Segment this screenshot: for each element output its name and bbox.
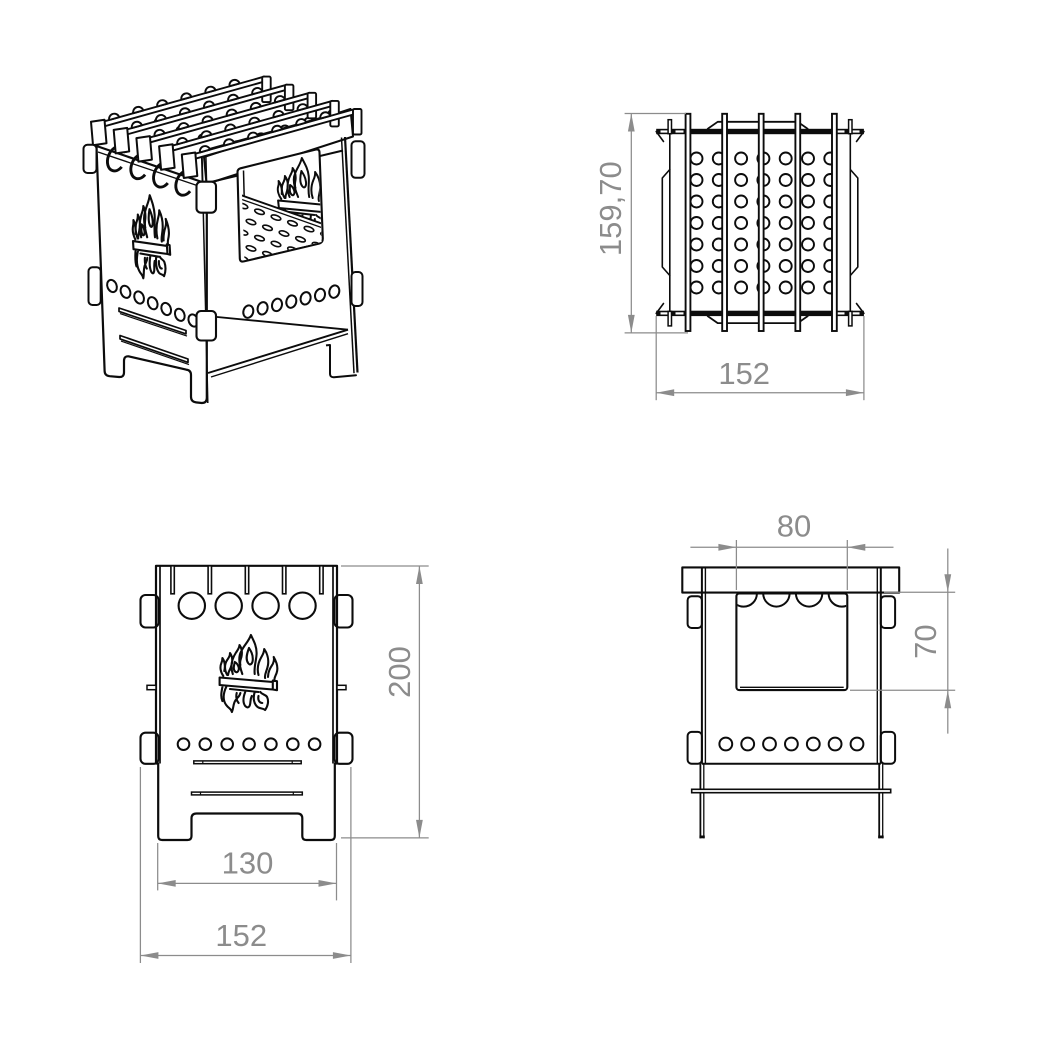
svg-text:80: 80 — [777, 509, 811, 544]
svg-text:200: 200 — [382, 646, 417, 698]
svg-text:70: 70 — [908, 624, 943, 658]
svg-text:152: 152 — [215, 918, 267, 953]
svg-text:130: 130 — [222, 846, 274, 881]
svg-text:159,70: 159,70 — [593, 161, 628, 256]
svg-text:152: 152 — [718, 356, 770, 391]
